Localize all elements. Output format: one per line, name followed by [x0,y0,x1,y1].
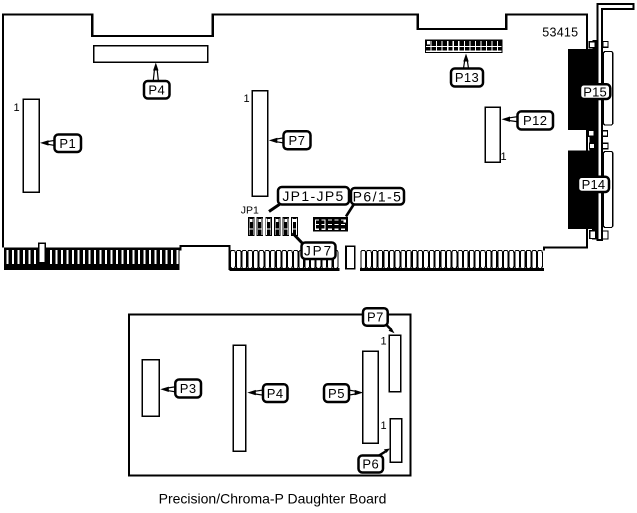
svg-text:JP1-JP5: JP1-JP5 [282,188,344,204]
svg-text:P14: P14 [582,177,606,192]
svg-text:1: 1 [243,93,249,105]
svg-text:P6: P6 [362,457,379,472]
svg-text:P6/1-5: P6/1-5 [353,188,403,204]
svg-text:P7: P7 [289,133,306,148]
svg-text:1: 1 [500,151,506,163]
svg-text:JP1: JP1 [241,205,259,217]
svg-text:1: 1 [13,102,19,114]
svg-text:1: 1 [380,336,386,348]
svg-text:P4: P4 [267,386,284,401]
svg-text:1: 1 [380,420,386,432]
svg-text:P1: P1 [59,136,76,151]
svg-text:P3: P3 [180,381,197,396]
svg-text:P7: P7 [367,310,384,325]
svg-text:P5: P5 [328,386,345,401]
svg-text:Precision/Chroma-P Daughter Bo: Precision/Chroma-P Daughter Board [159,490,387,506]
svg-text:P12: P12 [523,113,547,128]
svg-text:P15: P15 [583,84,607,99]
svg-text:53415: 53415 [542,25,578,39]
svg-text:P4: P4 [148,82,165,97]
svg-text:JP7: JP7 [304,244,333,259]
svg-text:P13: P13 [455,70,479,85]
